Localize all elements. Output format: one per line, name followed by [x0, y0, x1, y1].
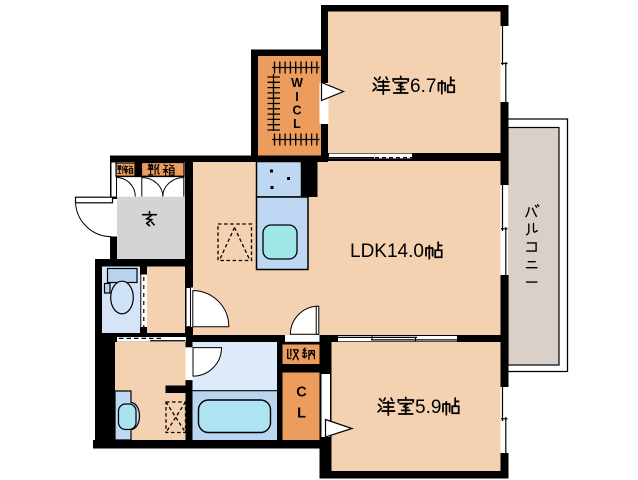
svg-text:L: L [297, 406, 306, 422]
svg-text:L: L [293, 117, 301, 131]
svg-text:LDK14.0: LDK14.0 [350, 241, 424, 262]
svg-text:C: C [296, 385, 307, 401]
svg-text:5.9: 5.9 [415, 397, 441, 418]
svg-text:C: C [292, 104, 301, 118]
svg-text:6.7: 6.7 [410, 76, 436, 97]
svg-text:I: I [295, 90, 298, 104]
svg-text:W: W [291, 76, 303, 90]
